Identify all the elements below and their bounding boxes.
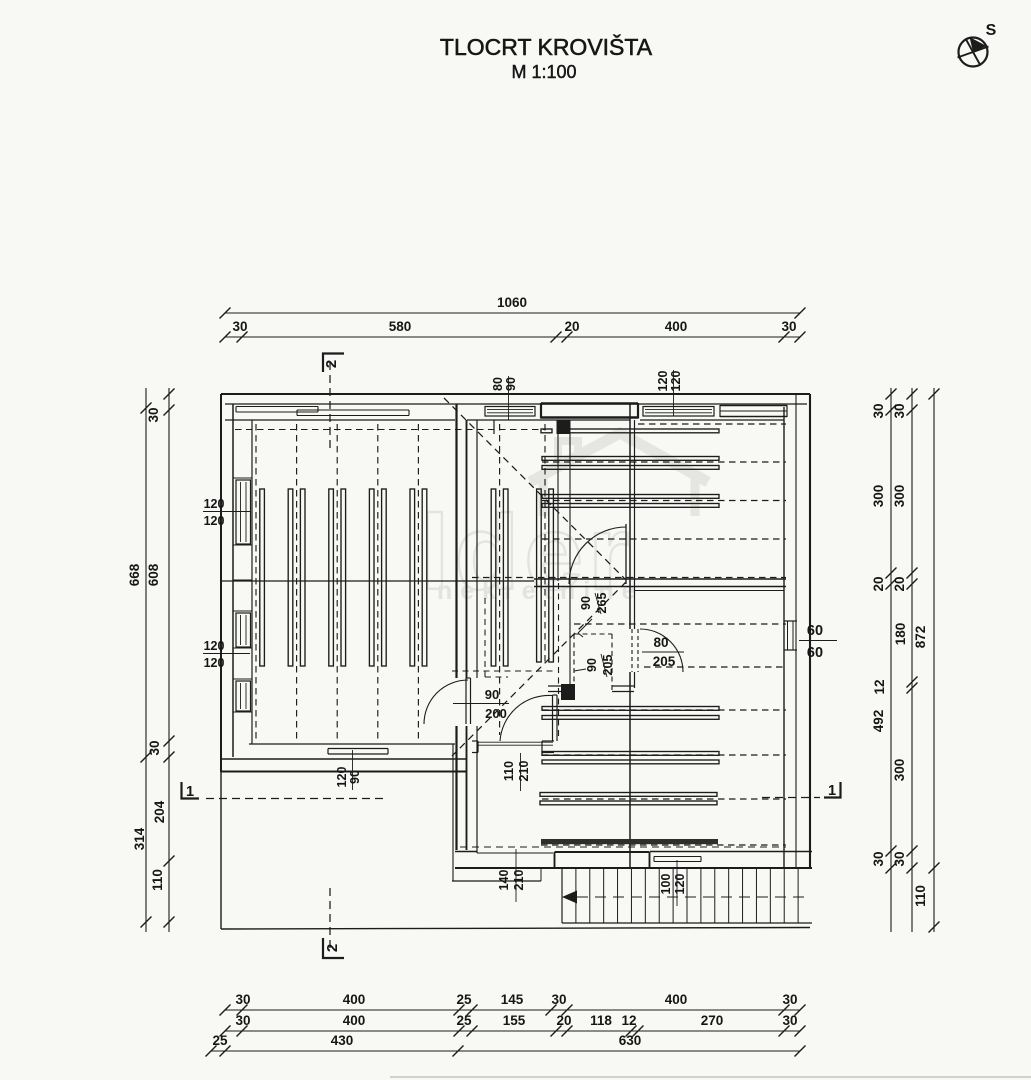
svg-text:110: 110 — [913, 885, 928, 907]
svg-text:608: 608 — [146, 563, 161, 586]
svg-text:400: 400 — [343, 992, 366, 1007]
svg-text:118: 118 — [590, 1013, 612, 1028]
svg-text:20: 20 — [871, 576, 886, 591]
svg-text:TLOCRT KROVIŠTA: TLOCRT KROVIŠTA — [440, 33, 653, 60]
svg-text:110: 110 — [150, 869, 165, 891]
svg-text:145: 145 — [501, 992, 524, 1007]
svg-text:300: 300 — [892, 759, 907, 782]
svg-text:210: 210 — [517, 761, 531, 782]
svg-text:205: 205 — [653, 654, 676, 669]
svg-text:492: 492 — [871, 710, 886, 733]
svg-text:1060: 1060 — [497, 295, 527, 310]
svg-text:120: 120 — [673, 874, 687, 895]
svg-text:210: 210 — [512, 870, 526, 891]
svg-text:60: 60 — [807, 645, 823, 661]
svg-text:668: 668 — [127, 563, 142, 586]
svg-text:S: S — [986, 22, 997, 39]
svg-text:120: 120 — [669, 371, 683, 392]
svg-text:2: 2 — [323, 360, 340, 368]
svg-text:110: 110 — [502, 761, 516, 781]
svg-text:630: 630 — [619, 1033, 642, 1048]
svg-text:314: 314 — [132, 827, 147, 850]
svg-text:430: 430 — [331, 1033, 354, 1048]
svg-text:155: 155 — [503, 1013, 526, 1028]
svg-text:90: 90 — [585, 658, 599, 672]
svg-text:25: 25 — [212, 1033, 228, 1048]
svg-text:90: 90 — [348, 770, 362, 784]
svg-text:270: 270 — [701, 1013, 724, 1028]
svg-text:200: 200 — [485, 706, 507, 721]
svg-text:30: 30 — [235, 992, 250, 1007]
svg-text:20: 20 — [564, 319, 579, 334]
svg-text:60: 60 — [807, 623, 823, 639]
svg-text:80: 80 — [491, 377, 505, 391]
svg-text:120: 120 — [204, 639, 225, 653]
svg-text:90: 90 — [579, 596, 593, 610]
svg-text:204: 204 — [152, 800, 167, 823]
svg-text:1: 1 — [828, 783, 836, 799]
svg-text:872: 872 — [913, 626, 928, 649]
svg-text:205: 205 — [601, 655, 615, 676]
svg-text:100: 100 — [659, 874, 673, 895]
svg-text:30: 30 — [551, 992, 566, 1007]
svg-text:140: 140 — [497, 870, 511, 891]
svg-text:400: 400 — [665, 319, 688, 334]
svg-text:80: 80 — [653, 635, 668, 650]
svg-text:120: 120 — [204, 514, 225, 528]
svg-text:120: 120 — [656, 371, 670, 392]
svg-text:30: 30 — [892, 403, 907, 418]
svg-text:300: 300 — [892, 485, 907, 508]
svg-text:265: 265 — [595, 593, 609, 614]
svg-text:120: 120 — [204, 656, 225, 670]
svg-text:580: 580 — [389, 319, 412, 334]
svg-text:30: 30 — [232, 319, 247, 334]
svg-text:12: 12 — [621, 1013, 636, 1028]
svg-text:12: 12 — [872, 679, 887, 694]
svg-text:2: 2 — [324, 944, 341, 952]
svg-text:30: 30 — [782, 992, 797, 1007]
svg-text:120: 120 — [204, 497, 225, 511]
svg-text:25: 25 — [456, 1013, 472, 1028]
svg-text:30: 30 — [147, 740, 162, 755]
svg-text:25: 25 — [456, 992, 472, 1007]
svg-text:30: 30 — [871, 403, 886, 418]
svg-text:120: 120 — [335, 767, 349, 788]
svg-text:1: 1 — [186, 784, 194, 800]
svg-text:M 1:100: M 1:100 — [511, 62, 576, 82]
svg-text:30: 30 — [871, 851, 886, 866]
svg-text:180: 180 — [893, 623, 908, 646]
svg-text:90: 90 — [485, 687, 499, 702]
svg-text:30: 30 — [892, 851, 907, 866]
svg-text:20: 20 — [556, 1013, 571, 1028]
svg-text:30: 30 — [235, 1013, 250, 1028]
svg-text:90: 90 — [504, 377, 518, 391]
svg-text:30: 30 — [782, 1013, 797, 1028]
svg-text:30: 30 — [146, 407, 161, 422]
svg-text:400: 400 — [343, 1013, 366, 1028]
svg-text:400: 400 — [665, 992, 688, 1007]
svg-text:20: 20 — [892, 576, 907, 591]
svg-text:300: 300 — [871, 485, 886, 508]
svg-text:30: 30 — [781, 319, 796, 334]
